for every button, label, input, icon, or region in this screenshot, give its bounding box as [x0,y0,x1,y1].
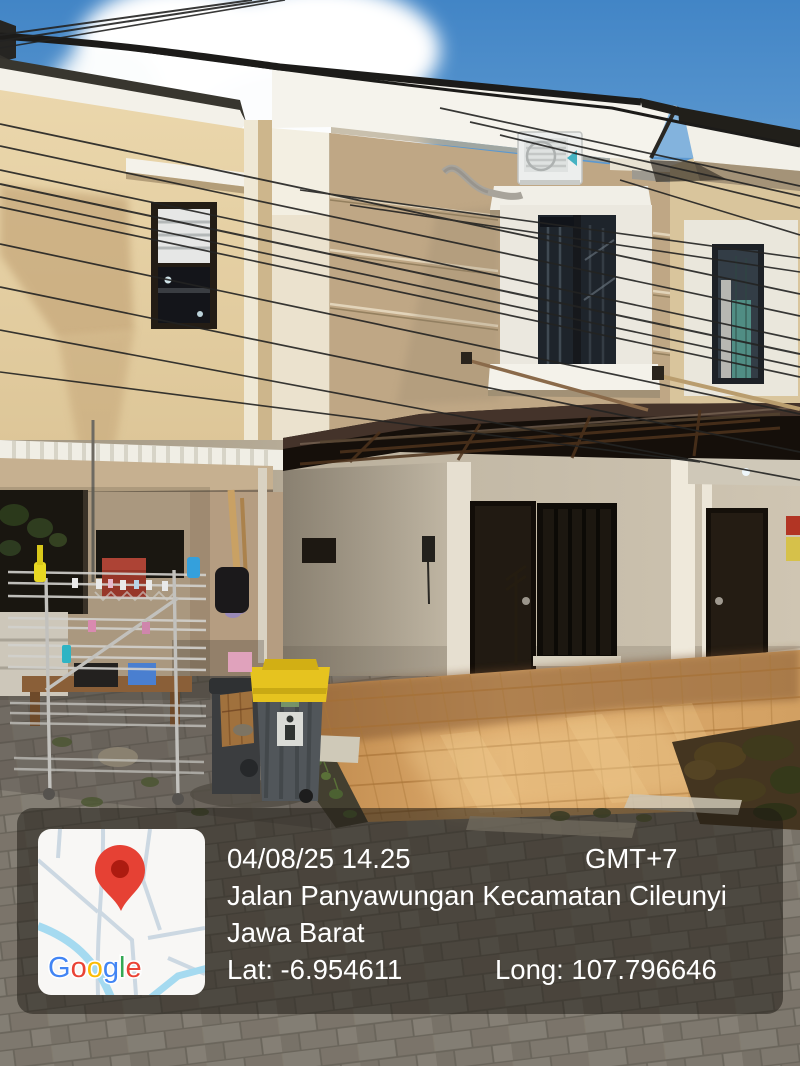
svg-text:Jawa Barat: Jawa Barat [227,917,365,948]
svg-text:Lat: -6.954611: Lat: -6.954611 [227,954,402,985]
svg-text:GMT+7: GMT+7 [585,843,677,874]
svg-text:Long: 107.796646: Long: 107.796646 [495,954,717,985]
svg-text:Google: Google [48,952,142,984]
svg-text:04/08/25 14.25: 04/08/25 14.25 [227,843,411,874]
svg-text:Jalan Panyawungan Kecamatan Ci: Jalan Panyawungan Kecamatan Cileunyi [227,880,727,911]
